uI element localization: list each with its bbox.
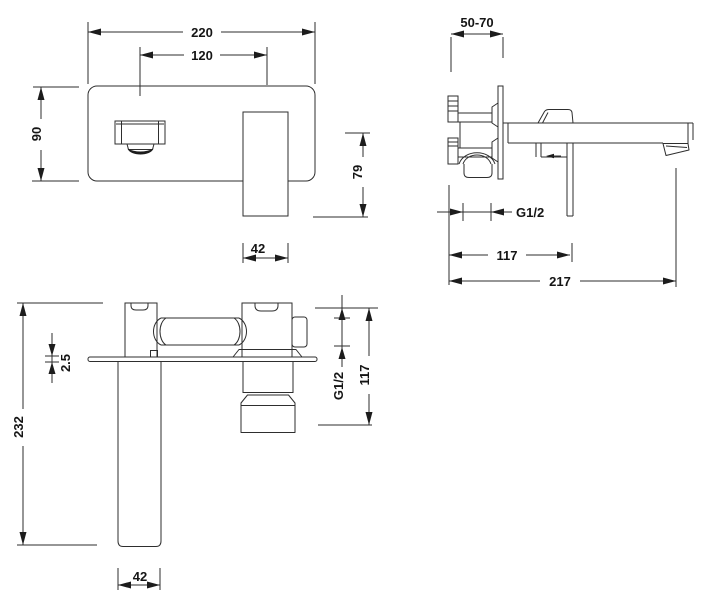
plan-inwall-bodies	[125, 303, 307, 357]
plan-wall-plate	[88, 357, 317, 362]
dim-side-handle-distance: 117	[449, 243, 572, 263]
side-wall-plate	[498, 86, 503, 179]
plan-view: 232 2.5 G1/2 117 42	[11, 295, 378, 590]
side-spout-outlet	[663, 144, 689, 156]
plan-valve-handle	[241, 362, 295, 433]
dim-front-spout-drop: 79	[313, 133, 371, 217]
front-spout	[115, 121, 165, 155]
dim-front-handle-width: 42	[243, 241, 288, 263]
drawing-canvas: 220 120 90 79	[0, 0, 703, 600]
side-spout	[503, 123, 693, 156]
side-handle-rod	[567, 143, 573, 216]
dim-label-front-spout-to-handle: 120	[191, 48, 213, 63]
dim-plan-thread: G1/2	[331, 295, 350, 400]
dim-label-plan-body-depth: 117	[357, 365, 372, 386]
dim-label-plan-plate-thickness: 2.5	[58, 354, 73, 372]
dim-side-total-reach: 217	[449, 168, 676, 289]
dim-label-front-spout-drop: 79	[350, 165, 365, 179]
dim-front-plate-height: 90	[29, 87, 79, 181]
dim-label-front-overall-width: 220	[191, 25, 213, 40]
front-view: 220 120 90 79	[29, 22, 371, 263]
side-lever	[536, 110, 573, 217]
dim-plan-plate-thickness: 2.5	[45, 333, 73, 383]
front-handle	[243, 112, 288, 216]
dim-plan-body-depth: 117	[315, 308, 378, 425]
dim-label-plan-thread: G1/2	[331, 372, 346, 400]
dim-front-spout-to-handle: 120	[140, 47, 267, 96]
dim-plan-overall-length: 232	[11, 303, 103, 545]
dim-label-front-plate-height: 90	[29, 127, 44, 141]
dim-label-side-total-reach: 217	[549, 274, 571, 289]
faucet-technical-drawing: 220 120 90 79	[0, 0, 703, 600]
dim-label-front-handle-width: 42	[251, 241, 265, 256]
dim-label-side-thread: G1/2	[516, 205, 544, 220]
dim-label-plan-overall-length: 232	[11, 416, 26, 438]
dim-label-side-handle-distance: 117	[497, 248, 518, 263]
side-view: 50-70 G1/2 117 217	[437, 15, 693, 289]
dim-label-side-wall-thickness: 50-70	[460, 15, 493, 30]
dim-side-wall-thickness: 50-70	[451, 15, 503, 72]
dim-plan-spout-width: 42	[118, 568, 160, 590]
dim-label-plan-spout-width: 42	[133, 569, 147, 584]
plan-spout-tube	[118, 362, 161, 547]
dim-side-thread: G1/2	[437, 185, 544, 285]
side-inlet-fittings	[448, 96, 498, 178]
